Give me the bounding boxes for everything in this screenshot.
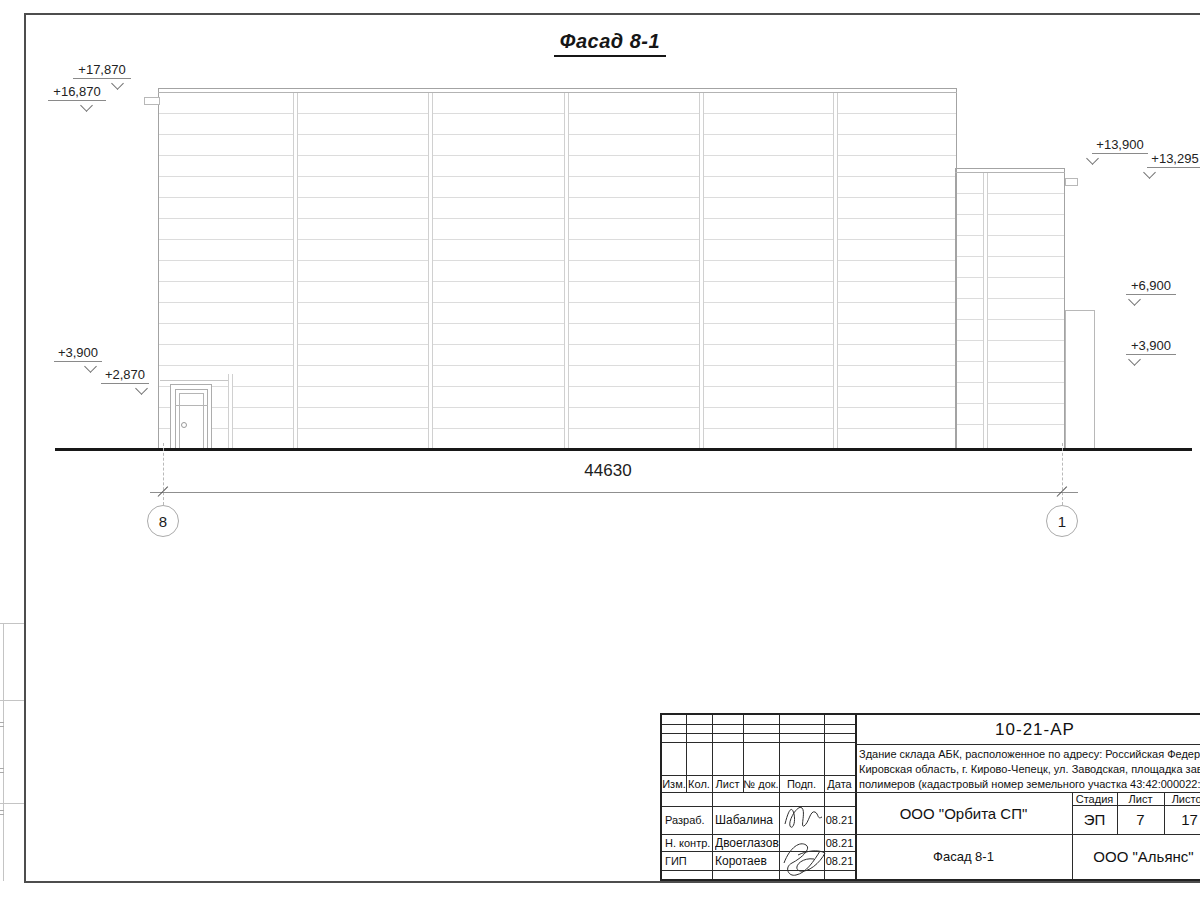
level-arrow-icon: [1128, 293, 1141, 306]
stamp-company: ООО "Альянс": [1072, 834, 1200, 879]
sheet-frame-bottom: [24, 881, 1200, 883]
stamp-line: [855, 744, 1200, 745]
stamp-col-list: Лист: [712, 775, 743, 792]
door-bay-joint: [228, 374, 233, 449]
stamp-description: Здание склада АБК, расположенное по адре…: [859, 747, 1200, 792]
stamp-stage-value: ЭП: [1072, 805, 1117, 834]
facade-ledge-left: [144, 97, 160, 105]
margin-table-mark: [0, 722, 4, 723]
parapet-line-low: [955, 172, 1065, 173]
drawing-title-text: Фасад 8-1: [554, 30, 666, 57]
stamp-sheets-label: Листов: [1164, 792, 1200, 805]
stamp-col-kol: Кол.: [686, 775, 712, 792]
level-mark-6900: +6,900: [1126, 278, 1176, 295]
stamp-role-nkontr: Н. контр.: [665, 834, 712, 851]
drawing-sheet: Фасад 8-1 44630 8 1 +17,870: [0, 0, 1200, 900]
level-arrow-icon: [135, 382, 148, 395]
door-leaf: [179, 393, 204, 449]
stamp-org: ООО "Орбита СП": [855, 792, 1072, 834]
facade-main-block: [158, 88, 957, 449]
sheet-frame-top: [24, 13, 1200, 15]
stamp-date-razrab: 08.21: [824, 806, 855, 834]
stamp-name-razrab: Шабалина: [715, 806, 779, 834]
door-transom-line: [175, 405, 208, 406]
door-handle-icon: [181, 422, 187, 428]
level-mark-3900-left: +3,900: [54, 345, 102, 362]
stamp-date-gip: 08.21: [824, 851, 855, 870]
facade-ledge-right: [1065, 178, 1078, 186]
stamp-stage-label: Стадия: [1072, 792, 1117, 805]
stamp-description-line3: полимеров (кадастровый номер земельного …: [859, 777, 1200, 792]
level-mark-2870: +2,870: [101, 367, 149, 384]
stamp-description-line1: Здание склада АБК, расположенное по адре…: [859, 747, 1200, 762]
facade-low-block: [955, 168, 1065, 449]
stamp-sheet-label: Лист: [1117, 792, 1164, 805]
dimension-value: 44630: [558, 461, 658, 481]
axis-bubble-8: 8: [147, 505, 179, 537]
margin-table-mark: [0, 814, 4, 815]
stamp-line: [712, 715, 713, 879]
stamp-doc-number: 10-21-АР: [855, 715, 1200, 744]
level-mark-13295: +13,295: [1147, 151, 1200, 168]
level-arrow-icon: [111, 77, 124, 90]
level-mark-16870: +16,870: [48, 84, 106, 101]
dimension-line: [150, 492, 1078, 493]
facade-annex: [1065, 310, 1095, 449]
dim-extension-right: [1062, 443, 1063, 505]
stamp-drawing-name: Фасад 8-1: [855, 834, 1072, 879]
dim-extension-left: [163, 443, 164, 505]
signature-icon: [782, 798, 824, 832]
stamp-line: [662, 733, 855, 734]
axis-bubble-1: 1: [1046, 505, 1078, 537]
sheet-frame-left: [24, 13, 26, 883]
stamp-role-gip: ГИП: [665, 851, 712, 870]
ground-line: [55, 448, 1192, 451]
margin-table-mark: [0, 768, 4, 769]
level-mark-17870: +17,870: [73, 62, 131, 79]
level-arrow-icon: [1128, 353, 1141, 366]
canopy-line: [160, 380, 230, 381]
parapet-line: [158, 92, 957, 93]
stamp-col-doc: № док.: [743, 775, 779, 792]
stamp-name-gip: Коротаев: [715, 851, 779, 870]
level-mark-3900-right: +3,900: [1126, 338, 1176, 355]
stamp-col-data: Дата: [824, 775, 855, 792]
stamp-sheet-value: 7: [1117, 805, 1164, 834]
level-arrow-icon: [1143, 166, 1156, 179]
stamp-col-izm: Изм.: [662, 775, 686, 792]
level-arrow-icon: [80, 99, 93, 112]
stamp-name-nkontr: Двоеглазов: [715, 834, 779, 851]
stamp-description-line2: Кировская область, г. Кирово-Чепецк, ул.…: [859, 762, 1200, 777]
stamp-role-razrab: Разраб.: [665, 806, 712, 834]
stamp-line: [662, 724, 855, 725]
level-arrow-icon: [84, 360, 97, 373]
stamp-line: [662, 742, 855, 743]
margin-table-line: [3, 623, 4, 881]
stamp-date-nkontr: 08.21: [824, 834, 855, 851]
stamp-sheets-value: 17: [1164, 805, 1200, 834]
level-arrow-icon: [1086, 152, 1099, 165]
level-mark-13900: +13,900: [1092, 137, 1148, 154]
margin-table-mark: [0, 810, 4, 811]
drawing-title: Фасад 8-1: [490, 30, 730, 57]
margin-table-mark: [0, 772, 4, 773]
signature-icon: [780, 833, 828, 879]
stamp-col-podp: Подп.: [779, 775, 824, 792]
title-block: Изм. Кол. Лист № док. Подп. Дата Разраб.…: [660, 713, 1200, 881]
margin-table-mark: [0, 726, 4, 727]
